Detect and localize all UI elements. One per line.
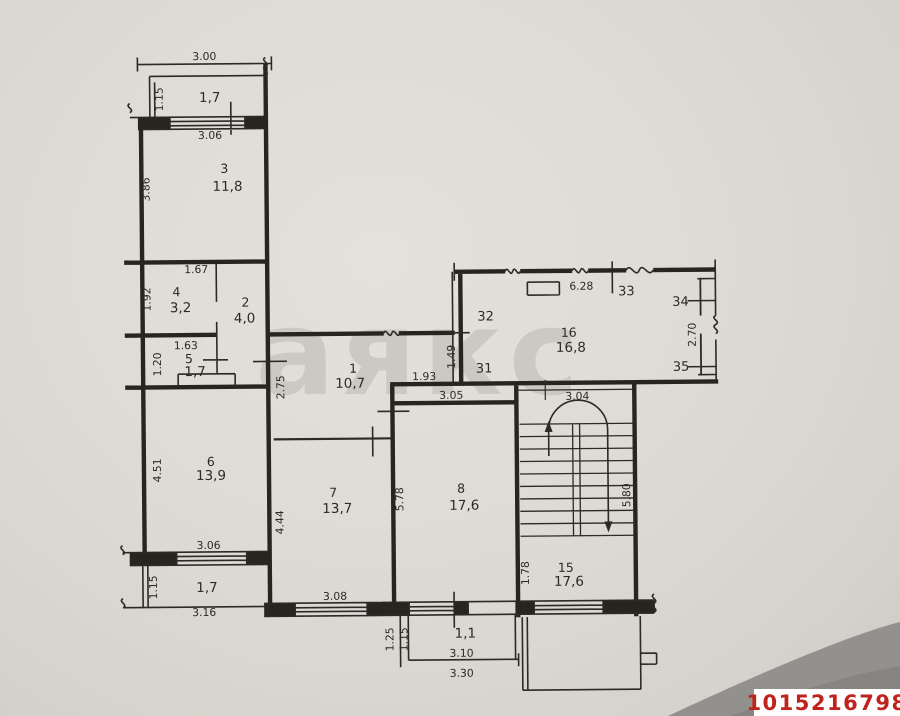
dim-room6-window: 3.06 xyxy=(197,539,221,552)
dim-room4-width: 1.67 xyxy=(184,263,208,276)
room-16-number: 16 xyxy=(561,325,577,340)
dim-left-balcony-width: 3.16 xyxy=(192,606,216,619)
dim-bottom-balcony-d1: 1.25 xyxy=(383,627,396,651)
dim-room7-height: 4.44 xyxy=(273,510,286,534)
room-15-number: 15 xyxy=(558,560,574,575)
room-7-area: 13,7 xyxy=(322,501,352,517)
marker-33: 33 xyxy=(618,284,635,299)
dim-room8-height: 5.78 xyxy=(393,487,406,511)
dim-hall-height: 2.75 xyxy=(274,375,287,399)
photo-id-text: 1015216798 xyxy=(746,691,900,715)
dim-stair-width: 3.04 xyxy=(565,390,589,403)
marker-35: 35 xyxy=(673,360,690,375)
dim-corridor-width: 1.93 xyxy=(412,370,436,383)
stair-treads xyxy=(520,423,634,536)
room-16-area: 16,8 xyxy=(556,340,586,356)
balcony-top-area: 1,7 xyxy=(199,90,221,106)
photo-id-badge: 1015216798 xyxy=(746,689,900,716)
room-7-number: 7 xyxy=(329,485,337,500)
dim-room8-width: 3.05 xyxy=(439,389,463,402)
floor-plan-photo: аякс xyxy=(0,0,900,716)
room-2-number: 2 xyxy=(241,295,249,310)
dim-room15-depth: 1.78 xyxy=(519,561,532,585)
balcony-bottom-area: 1,1 xyxy=(455,626,477,642)
dim-stair-height: 5.80 xyxy=(620,483,633,507)
dim-loggia-width: 6.28 xyxy=(569,280,593,293)
room-6-area: 13,9 xyxy=(196,468,226,484)
dim-left-balcony-depth: 1.15 xyxy=(147,575,160,599)
dim-shaft-height: 1.49 xyxy=(445,345,458,369)
dim-top-window: 3.06 xyxy=(198,129,222,142)
dim-room3-height: 3.86 xyxy=(139,177,152,201)
room-15-area: 17,6 xyxy=(554,574,584,590)
room-4-area: 3,2 xyxy=(170,300,192,316)
room-8-area: 17,6 xyxy=(449,498,479,514)
room-1-number: 1 xyxy=(349,361,357,376)
marker-32: 32 xyxy=(477,309,494,324)
room-6-number: 6 xyxy=(207,454,215,469)
room-5-area: 1,7 xyxy=(184,364,206,380)
dim-top-width: 3.00 xyxy=(192,50,216,63)
dim-loggia-depth: 2.70 xyxy=(686,323,699,347)
balcony-left-area: 1,7 xyxy=(196,580,218,596)
room-3-area: 11,8 xyxy=(212,179,242,195)
dim-room6-height: 4.51 xyxy=(151,458,164,482)
dim-room5-height: 1.20 xyxy=(151,352,164,376)
floor-plan-svg: аякс xyxy=(0,0,900,716)
room-1-area: 10,7 xyxy=(335,376,365,392)
marker-31: 31 xyxy=(476,361,493,376)
room-3-number: 3 xyxy=(220,161,228,176)
room-8-number: 8 xyxy=(457,481,465,496)
dim-bottom-balcony-d2: 1.15 xyxy=(397,627,410,651)
room-2-area: 4,0 xyxy=(234,311,256,327)
dim-bottom-balcony-w1: 3.10 xyxy=(449,647,473,660)
dim-top-balcony-depth: 1.15 xyxy=(153,87,166,111)
dim-bottom-balcony-w2: 3.30 xyxy=(450,667,474,680)
room-4-number: 4 xyxy=(172,284,180,299)
marker-34: 34 xyxy=(672,295,689,310)
dim-room7-window: 3.08 xyxy=(323,590,347,603)
dim-room4-height: 1.92 xyxy=(140,287,153,311)
